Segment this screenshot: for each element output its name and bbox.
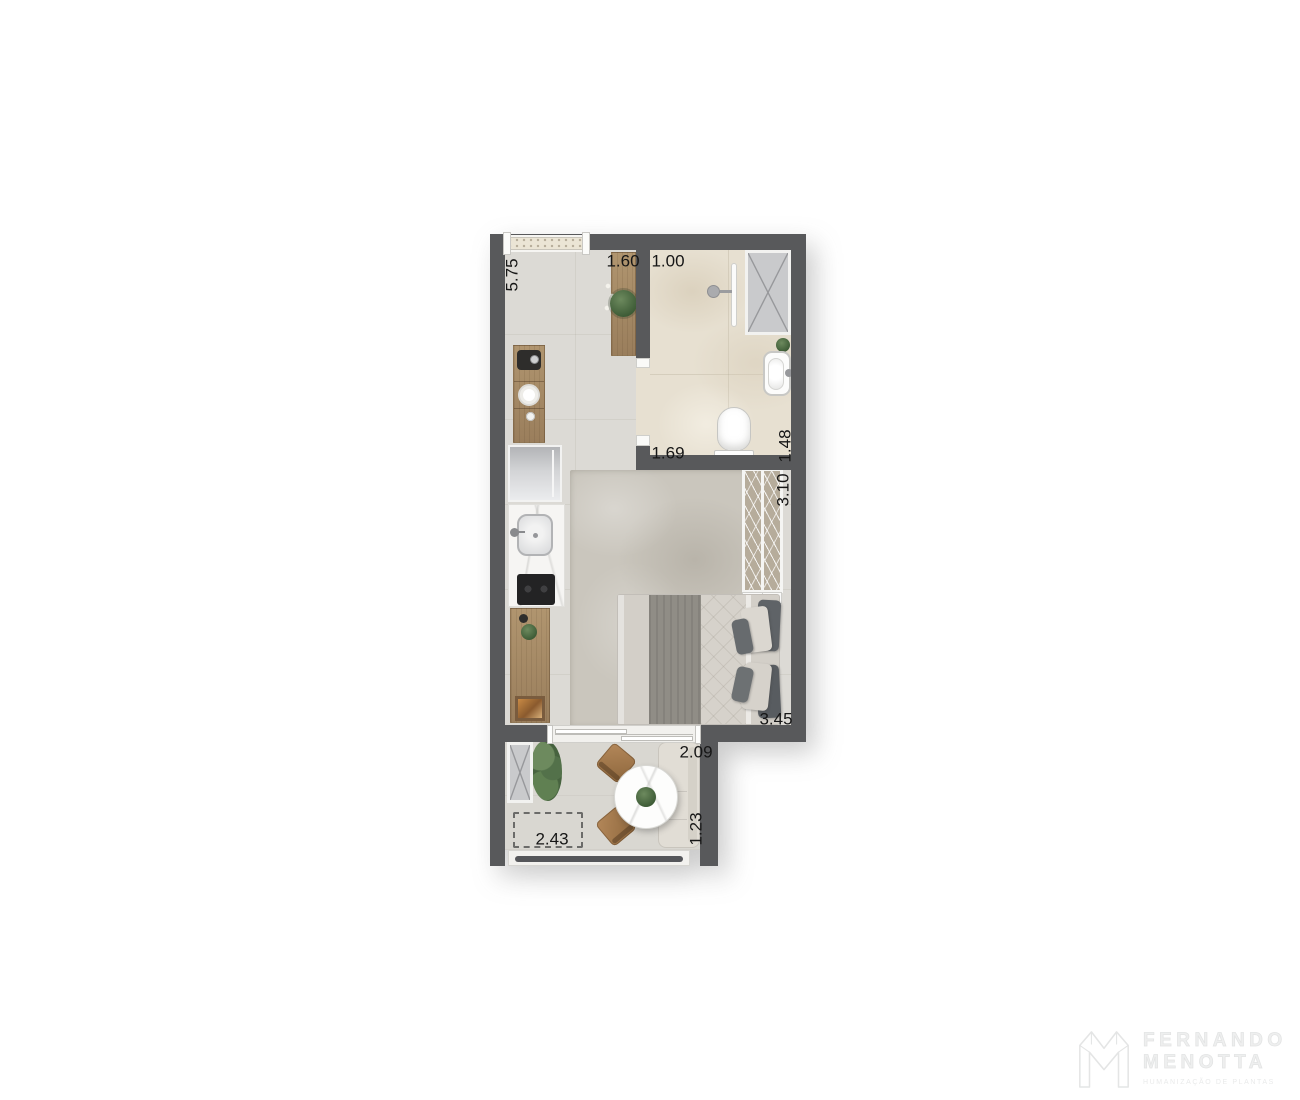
shower-glass-partition (731, 263, 737, 327)
bathroom-door-jamb (636, 358, 650, 368)
brand-name-bottom: MENOTTA (1143, 1052, 1287, 1074)
bathroom-plant (776, 338, 790, 352)
counter-plant (521, 624, 537, 640)
window-jamb (503, 232, 511, 255)
burner-knobs (517, 412, 543, 446)
wall-left (490, 234, 505, 866)
bed-sheet-edge (618, 595, 624, 724)
coffee-machine (517, 350, 541, 370)
studio-floor-plan: 5.75 1.60 1.00 1.69 1.48 3.10 3.45 2.09 … (490, 228, 806, 868)
picture-frame (515, 696, 545, 721)
sliding-panel (621, 736, 693, 741)
refrigerator (508, 445, 562, 502)
toilet-bowl (717, 407, 751, 451)
dimension-label-wardrobe-length: 3.10 (775, 473, 792, 506)
table-centerpiece-plant (636, 787, 656, 807)
duct-shaft-bathroom (745, 250, 791, 335)
dimension-label-entry-width: 1.60 (606, 253, 639, 270)
cup (519, 614, 528, 623)
dimension-label-balcony-width: 2.43 (535, 831, 568, 848)
dimension-label-balcony-door-width: 2.09 (679, 744, 712, 761)
balcony-bush (531, 741, 562, 801)
dimension-label-bath-width: 1.69 (651, 445, 684, 462)
shower-arm (720, 290, 732, 293)
balcony-sliding-door (550, 725, 698, 743)
dimension-label-bath-depth: 1.48 (777, 429, 794, 462)
dimension-label-bath-door-width: 1.00 (651, 253, 684, 270)
brand-name-top: FERNANDO (1143, 1030, 1287, 1052)
brand-m-logo-icon (1075, 1024, 1133, 1092)
watermark: FERNANDO MENOTTA HUMANIZAÇÃO DE PLANTAS (1075, 1022, 1297, 1100)
kitchen-sink (517, 514, 553, 556)
shower-head-icon (707, 285, 720, 298)
window-jamb (582, 232, 590, 255)
floor-plan-page: 5.75 1.60 1.00 1.69 1.48 3.10 3.45 2.09 … (0, 0, 1300, 1100)
bed-quilt (701, 595, 746, 724)
wall-right (791, 234, 806, 742)
kitchen-faucet (510, 528, 519, 537)
wall-balcony-top-left (490, 725, 550, 742)
cooktop (517, 574, 555, 605)
double-bed (617, 594, 780, 725)
dimension-label-balcony-depth: 1.23 (688, 812, 705, 845)
duct-shaft-balcony (507, 742, 533, 803)
sliding-panel (555, 729, 627, 734)
bathroom-door-jamb (636, 435, 650, 446)
top-window (505, 235, 590, 252)
bathroom-doorway-floor (636, 367, 650, 435)
bed-throw-blanket (649, 595, 701, 724)
plate (518, 384, 540, 406)
brand-tagline: HUMANIZAÇÃO DE PLANTAS (1143, 1079, 1287, 1086)
dimension-label-window-width: 5.75 (504, 258, 521, 291)
console-plant (610, 290, 637, 317)
dimension-label-bedroom-width: 3.45 (759, 711, 792, 728)
balcony-railing (508, 850, 690, 866)
